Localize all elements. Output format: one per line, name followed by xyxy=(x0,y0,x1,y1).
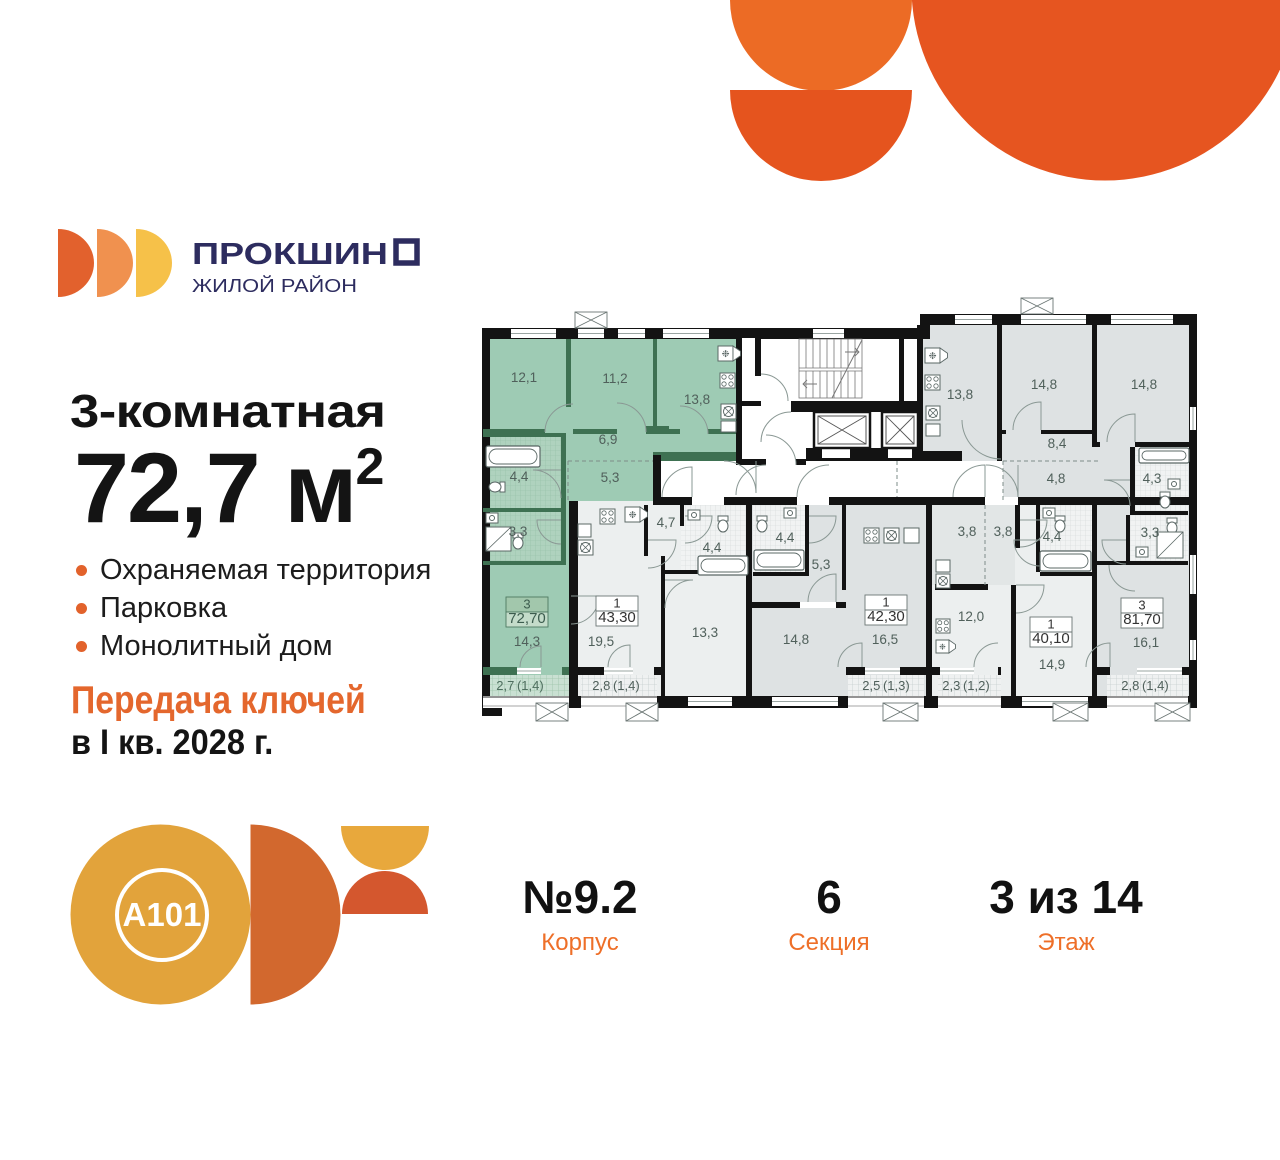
svg-text:14,3: 14,3 xyxy=(514,634,540,649)
svg-text:14,8: 14,8 xyxy=(1031,377,1057,392)
svg-text:2,8 (1,4): 2,8 (1,4) xyxy=(1121,678,1168,693)
svg-text:14,8: 14,8 xyxy=(1131,377,1157,392)
svg-text:8,4: 8,4 xyxy=(1048,436,1067,451)
svg-text:43,30: 43,30 xyxy=(598,609,636,626)
svg-text:12,1: 12,1 xyxy=(511,370,537,385)
svg-text:4,4: 4,4 xyxy=(776,530,795,545)
svg-text:2,8 (1,4): 2,8 (1,4) xyxy=(592,678,639,693)
svg-text:❉: ❉ xyxy=(629,510,637,520)
svg-text:19,5: 19,5 xyxy=(588,634,614,649)
svg-text:2,7 (1,4): 2,7 (1,4) xyxy=(496,678,543,693)
svg-text:❉: ❉ xyxy=(939,642,946,651)
svg-text:13,8: 13,8 xyxy=(947,387,973,402)
svg-text:11,2: 11,2 xyxy=(602,371,627,386)
svg-text:2,3 (1,2): 2,3 (1,2) xyxy=(942,678,989,693)
svg-text:13,3: 13,3 xyxy=(692,625,718,640)
svg-text:6,9: 6,9 xyxy=(599,432,618,447)
svg-text:3,8: 3,8 xyxy=(958,524,977,539)
svg-text:A101: A101 xyxy=(123,896,202,933)
svg-text:3,3: 3,3 xyxy=(509,524,528,539)
svg-text:❉: ❉ xyxy=(722,349,730,359)
svg-text:16,1: 16,1 xyxy=(1133,635,1159,650)
svg-text:4,3: 4,3 xyxy=(1143,471,1162,486)
svg-text:5,3: 5,3 xyxy=(601,470,620,485)
svg-text:40,10: 40,10 xyxy=(1032,630,1070,647)
svg-text:13,8: 13,8 xyxy=(684,392,710,407)
svg-text:4,7: 4,7 xyxy=(657,515,676,530)
svg-text:3,3: 3,3 xyxy=(1141,525,1160,540)
svg-text:2,5 (1,3): 2,5 (1,3) xyxy=(862,678,909,693)
svg-text:14,9: 14,9 xyxy=(1039,657,1065,672)
svg-text:3,8: 3,8 xyxy=(994,524,1013,539)
svg-text:4,4: 4,4 xyxy=(1043,529,1062,544)
svg-text:5,3: 5,3 xyxy=(812,557,831,572)
svg-text:81,70: 81,70 xyxy=(1123,611,1161,628)
svg-text:12,0: 12,0 xyxy=(958,609,984,624)
svg-text:16,5: 16,5 xyxy=(872,632,898,647)
svg-text:❉: ❉ xyxy=(929,351,937,361)
svg-text:ЖИЛОЙ РАЙОН: ЖИЛОЙ РАЙОН xyxy=(192,275,357,296)
svg-text:72,70: 72,70 xyxy=(508,610,546,627)
svg-text:4,4: 4,4 xyxy=(703,540,722,555)
svg-text:ПРОКШИН: ПРОКШИН xyxy=(192,236,388,271)
svg-text:14,8: 14,8 xyxy=(783,632,809,647)
svg-text:4,4: 4,4 xyxy=(510,469,529,484)
svg-text:4,8: 4,8 xyxy=(1047,471,1066,486)
svg-text:42,30: 42,30 xyxy=(867,608,905,625)
